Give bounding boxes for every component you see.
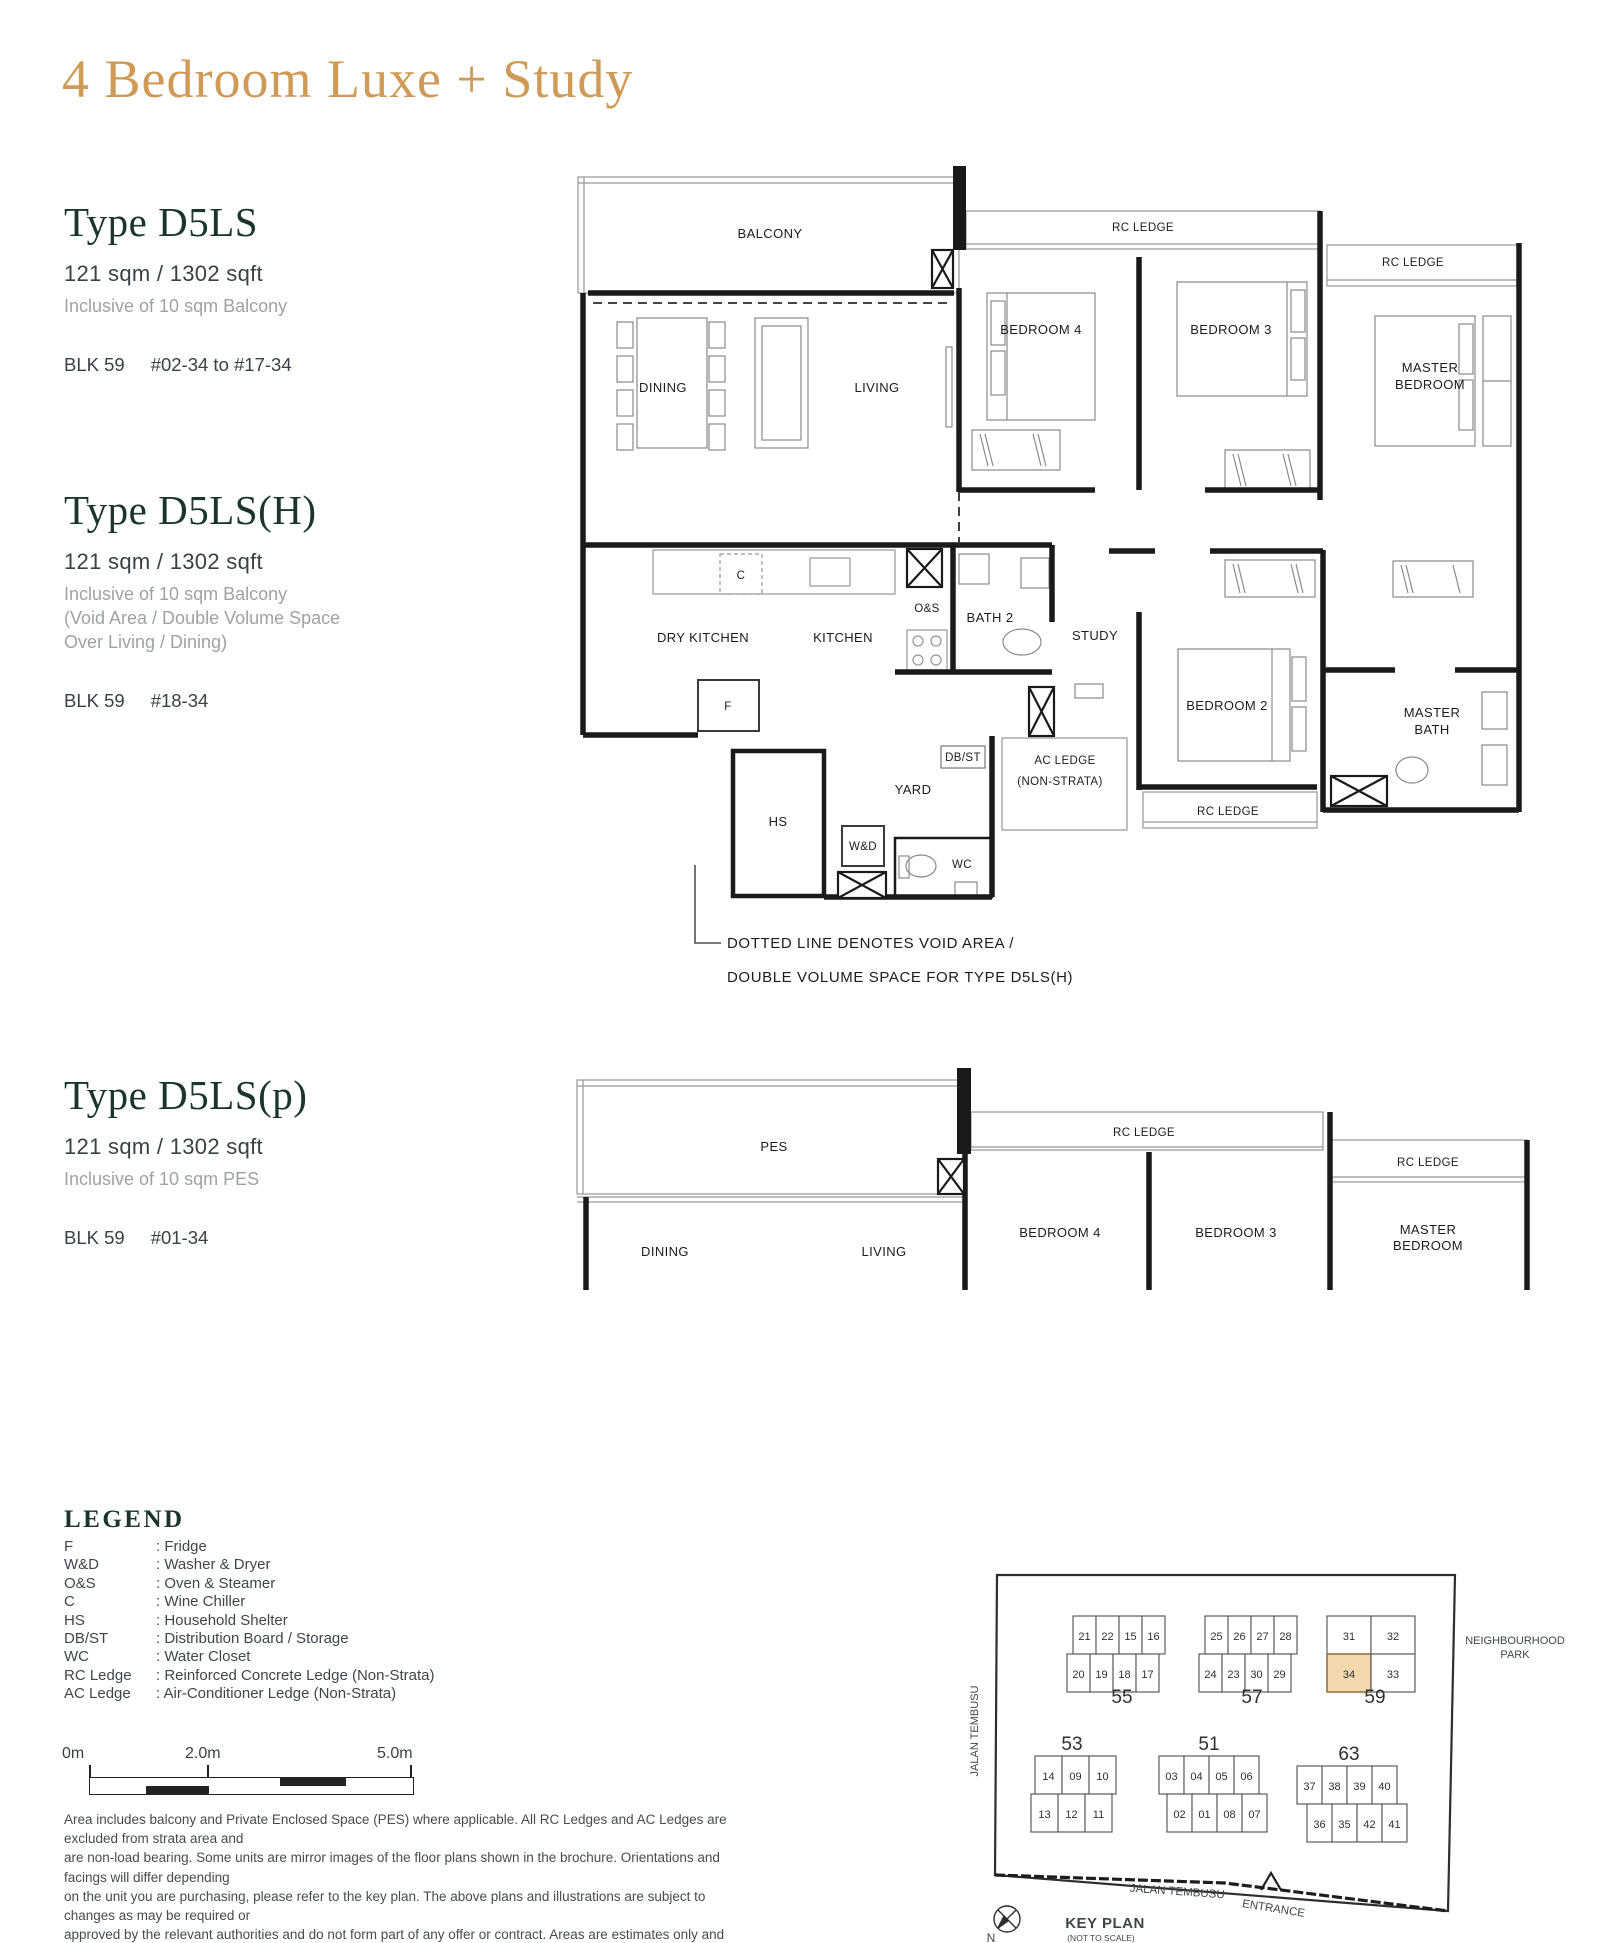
compass-icon [994, 1906, 1020, 1932]
legend-desc: : Fridge [156, 1538, 207, 1555]
disclaimer-line: Area includes balcony and Private Enclos… [64, 1810, 744, 1848]
keyplan-unit-number: 24 [1204, 1669, 1216, 1681]
keyplan-unit-number: 28 [1279, 1631, 1291, 1643]
legend-desc: : Distribution Board / Storage [156, 1630, 349, 1647]
room-label-bedroom2: BEDROOM 2 [1186, 698, 1268, 713]
legend-abbr: C [64, 1593, 156, 1611]
scale-bar [89, 1777, 414, 1795]
type-name: Type D5LS(p) [64, 1073, 494, 1117]
label-ac-ledge: AC LEDGE [1034, 755, 1095, 767]
keyplan-unit-number: 30 [1250, 1669, 1262, 1681]
disclaimer-text: Area includes balcony and Private Enclos… [64, 1810, 744, 1943]
keyplan-unit-number: 40 [1378, 1781, 1390, 1793]
block-label: BLK 59 [64, 690, 125, 711]
keyplan-unit-number: 25 [1210, 1631, 1222, 1643]
type-block-units: BLK 59#01-34 [64, 1227, 494, 1249]
room-label-master-bath: BATH [1414, 722, 1449, 737]
legend-abbr: RC Ledge [64, 1667, 156, 1685]
type-block-units: BLK 59#18-34 [64, 690, 494, 712]
room-label-master-bedroom: BEDROOM [1395, 377, 1465, 392]
keyplan-block-number: 55 [1111, 1687, 1132, 1708]
legend-desc: : Air-Conditioner Ledge (Non-Strata) [156, 1685, 396, 1702]
scale-label-0m: 0m [62, 1745, 84, 1763]
keyplan-unit-number: 33 [1387, 1669, 1399, 1681]
legend-abbr: DB/ST [64, 1630, 156, 1648]
room-label-master-bedroom: MASTER [1400, 1222, 1457, 1237]
neighbourhood-park-label: NEIGHBOURHOOD [1465, 1635, 1565, 1647]
keyplan-subtitle: (NOT TO SCALE) [1067, 1933, 1135, 1943]
legend-row: O&S: Oven & Steamer [64, 1575, 434, 1593]
legend-row: W&D: Washer & Dryer [64, 1556, 434, 1574]
scale-label-5m: 5.0m [377, 1745, 413, 1763]
keyplan-unit-number: 21 [1078, 1631, 1090, 1643]
keyplan-unit-number: 07 [1248, 1809, 1260, 1821]
brochure-page: 4 Bedroom Luxe + Study Type D5LS 121 sqm… [0, 0, 1600, 1943]
type-area: 121 sqm / 1302 sqft [64, 549, 494, 575]
keyplan-unit-number: 17 [1141, 1669, 1153, 1681]
legend-abbr: WC [64, 1648, 156, 1666]
legend-desc: : Water Closet [156, 1648, 250, 1665]
room-label-dining: DINING [641, 1244, 689, 1259]
keyplan-unit-number: 22 [1101, 1631, 1113, 1643]
label-household-shelter: HS [769, 814, 788, 829]
keyplan-unit-number: 15 [1124, 1631, 1136, 1643]
type-name: Type D5LS [64, 200, 494, 244]
keyplan-block-number: 63 [1338, 1744, 1359, 1765]
room-label-dining: DINING [639, 380, 687, 395]
unit-range: #02-34 to #17-34 [151, 354, 292, 375]
keyplan-unit-number: 14 [1042, 1771, 1054, 1783]
room-label-yard: YARD [895, 782, 932, 797]
type-card-d5ls: Type D5LS 121 sqm / 1302 sqft Inclusive … [64, 200, 494, 376]
floor-plan-d5ls-p: PES RC LEDGE RC LEDGE DINING LIVING BEDR… [560, 1050, 1580, 1290]
label-oven-steamer: O&S [914, 603, 940, 615]
keyplan-block-number: 59 [1364, 1687, 1385, 1708]
keyplan-unit-number: 16 [1147, 1631, 1159, 1643]
type-area: 121 sqm / 1302 sqft [64, 1134, 494, 1160]
legend-desc: : Oven & Steamer [156, 1575, 275, 1592]
keyplan-unit-number: 05 [1215, 1771, 1227, 1783]
keyplan-unit-number: 08 [1223, 1809, 1235, 1821]
key-plan: 2122151620191817552526272824233029573132… [955, 1543, 1600, 1943]
keyplan-blocks: 2122151620191817552526272824233029573132… [1031, 1616, 1415, 1842]
keyplan-unit-number: 27 [1256, 1631, 1268, 1643]
keyplan-block-number: 53 [1061, 1734, 1082, 1755]
room-label-kitchen: KITCHEN [813, 630, 873, 645]
wall-bar [957, 1068, 971, 1154]
scale-label-2m: 2.0m [185, 1745, 221, 1763]
keyplan-unit-number: 39 [1353, 1781, 1365, 1793]
type-area: 121 sqm / 1302 sqft [64, 261, 494, 287]
scale-segment [280, 1778, 346, 1786]
keyplan-block-number: 57 [1241, 1687, 1262, 1708]
legend-row: HS: Household Shelter [64, 1612, 434, 1630]
room-label-master-bedroom: BEDROOM [1393, 1238, 1463, 1253]
keyplan-block-number: 51 [1198, 1734, 1219, 1755]
inclusive-line: (Void Area / Double Volume Space [64, 606, 494, 630]
label-wc: WC [952, 859, 972, 871]
legend-row: AC Ledge: Air-Conditioner Ledge (Non-Str… [64, 1685, 434, 1703]
legend-list: F: Fridge W&D: Washer & Dryer O&S: Oven … [64, 1538, 434, 1704]
legend-row: F: Fridge [64, 1538, 434, 1556]
keyplan-unit-number: 34 [1343, 1669, 1355, 1681]
wall-bar [953, 166, 966, 250]
block-label: BLK 59 [64, 354, 125, 375]
north-label: N [987, 1931, 996, 1943]
rc-ledge-label: RC LEDGE [1113, 1127, 1175, 1139]
keyplan-unit-number: 18 [1118, 1669, 1130, 1681]
neighbourhood-park-label: PARK [1500, 1649, 1530, 1661]
disclaimer-line: are non-load bearing. Some units are mir… [64, 1848, 744, 1886]
room-label-pes: PES [760, 1139, 787, 1154]
room-label-dry-kitchen: DRY KITCHEN [657, 630, 749, 645]
keyplan-unit-number: 20 [1072, 1669, 1084, 1681]
keyplan-unit-number: 38 [1328, 1781, 1340, 1793]
legend-desc: : Household Shelter [156, 1612, 288, 1629]
room-label-master-bedroom: MASTER [1402, 360, 1459, 375]
rc-ledge-label: RC LEDGE [1112, 222, 1174, 234]
label-ac-ledge-nonstrata: (NON-STRATA) [1017, 776, 1103, 788]
keyplan-unit-number: 23 [1227, 1669, 1239, 1681]
legend-row: C: Wine Chiller [64, 1593, 434, 1611]
disclaimer-line: approved by the relevant authorities and… [64, 1925, 744, 1943]
block-label: BLK 59 [64, 1227, 125, 1248]
legend-abbr: AC Ledge [64, 1685, 156, 1703]
keyplan-unit-number: 13 [1038, 1809, 1050, 1821]
type-card-d5ls-h: Type D5LS(H) 121 sqm / 1302 sqft Inclusi… [64, 488, 494, 712]
jalan-tembusu-left-label: JALAN TEMBUSU [969, 1686, 981, 1777]
page-title: 4 Bedroom Luxe + Study [62, 48, 633, 110]
plan2-thin-lines [577, 1080, 1527, 1202]
keyplan-unit-number: 41 [1388, 1819, 1400, 1831]
legend-abbr: F [64, 1538, 156, 1556]
legend-abbr: O&S [64, 1575, 156, 1593]
void-note-line2: DOUBLE VOLUME SPACE FOR TYPE D5LS(H) [727, 969, 1073, 986]
keyplan-unit-number: 02 [1173, 1809, 1185, 1821]
type-block-units: BLK 59#02-34 to #17-34 [64, 354, 494, 376]
keyplan-unit-number: 32 [1387, 1631, 1399, 1643]
legend-desc: : Wine Chiller [156, 1593, 245, 1610]
floor-plan-d5ls: BALCONY RC LEDGE RC LEDGE DINING LIVING … [555, 160, 1575, 1020]
unit-range: #01-34 [151, 1227, 209, 1248]
legend-row: RC Ledge: Reinforced Concrete Ledge (Non… [64, 1667, 434, 1685]
void-note-line1: DOTTED LINE DENOTES VOID AREA / [727, 935, 1014, 952]
legend-abbr: HS [64, 1612, 156, 1630]
shaft-box [938, 1159, 964, 1194]
entrance-label: ENTRANCE [1241, 1898, 1306, 1920]
room-label-master-bath: MASTER [1404, 705, 1461, 720]
keyplan-unit-number: 12 [1065, 1809, 1077, 1821]
keyplan-unit-number: 29 [1273, 1669, 1285, 1681]
keyplan-unit-number: 06 [1240, 1771, 1252, 1783]
keyplan-unit-number: 31 [1343, 1631, 1355, 1643]
room-label-bedroom4: BEDROOM 4 [1000, 322, 1082, 337]
legend-row: DB/ST: Distribution Board / Storage [64, 1630, 434, 1648]
label-wine-chiller: C [737, 570, 746, 582]
keyplan-unit-number: 26 [1233, 1631, 1245, 1643]
scale-tick [410, 1765, 412, 1777]
keyplan-unit-number: 37 [1303, 1781, 1315, 1793]
room-label-bedroom3: BEDROOM 3 [1195, 1225, 1277, 1240]
unit-range: #18-34 [151, 690, 209, 711]
rc-ledge-label: RC LEDGE [1397, 1157, 1459, 1169]
legend-heading: LEGEND [64, 1506, 185, 1534]
type-card-d5ls-p: Type D5LS(p) 121 sqm / 1302 sqft Inclusi… [64, 1073, 494, 1249]
inclusive-line: Over Living / Dining) [64, 630, 494, 654]
plan2-walls [586, 1112, 1527, 1290]
label-fridge: F [724, 701, 731, 713]
keyplan-unit-number: 11 [1093, 1809, 1104, 1821]
legend-desc: : Reinforced Concrete Ledge (Non-Strata) [156, 1667, 434, 1684]
room-label-bedroom3: BEDROOM 3 [1190, 322, 1272, 337]
keyplan-title: KEY PLAN [1065, 1915, 1145, 1932]
legend-abbr: W&D [64, 1556, 156, 1574]
scale-segment [146, 1786, 209, 1794]
keyplan-unit-number: 35 [1338, 1819, 1350, 1831]
room-label-study: STUDY [1072, 628, 1118, 643]
inclusive-line: Inclusive of 10 sqm Balcony [64, 582, 494, 606]
keyplan-unit-number: 09 [1069, 1771, 1081, 1783]
room-label-bath2: BATH 2 [967, 610, 1014, 625]
room-label-balcony: BALCONY [738, 226, 803, 241]
note-leader-line [695, 865, 721, 943]
scale-tick [89, 1765, 91, 1777]
disclaimer-line: on the unit you are purchasing, please r… [64, 1887, 744, 1925]
rc-ledge-label: RC LEDGE [1197, 806, 1259, 818]
keyplan-unit-number: 36 [1313, 1819, 1325, 1831]
keyplan-unit-number: 03 [1165, 1771, 1177, 1783]
rc-ledge-label: RC LEDGE [1382, 257, 1444, 269]
keyplan-unit-number: 01 [1198, 1809, 1210, 1821]
room-label-living: LIVING [854, 380, 899, 395]
label-washer-dryer: W&D [849, 841, 877, 853]
void-dashed-lines [593, 303, 959, 545]
room-label-bedroom4: BEDROOM 4 [1019, 1225, 1101, 1240]
scale-tick [207, 1765, 209, 1777]
type-name: Type D5LS(H) [64, 488, 494, 532]
keyplan-unit-number: 19 [1095, 1669, 1107, 1681]
type-inclusive: Inclusive of 10 sqm Balcony (Void Area /… [64, 582, 494, 654]
legend-row: WC: Water Closet [64, 1648, 434, 1666]
legend-desc: : Washer & Dryer [156, 1556, 270, 1573]
keyplan-unit-number: 42 [1363, 1819, 1375, 1831]
label-dbst: DB/ST [945, 752, 981, 764]
room-label-living: LIVING [861, 1244, 906, 1259]
jalan-tembusu-bottom-label: JALAN TEMBUSU [1129, 1883, 1225, 1902]
type-inclusive: Inclusive of 10 sqm PES [64, 1167, 494, 1191]
keyplan-unit-number: 04 [1190, 1771, 1202, 1783]
type-inclusive: Inclusive of 10 sqm Balcony [64, 294, 494, 318]
keyplan-unit-number: 10 [1096, 1771, 1108, 1783]
